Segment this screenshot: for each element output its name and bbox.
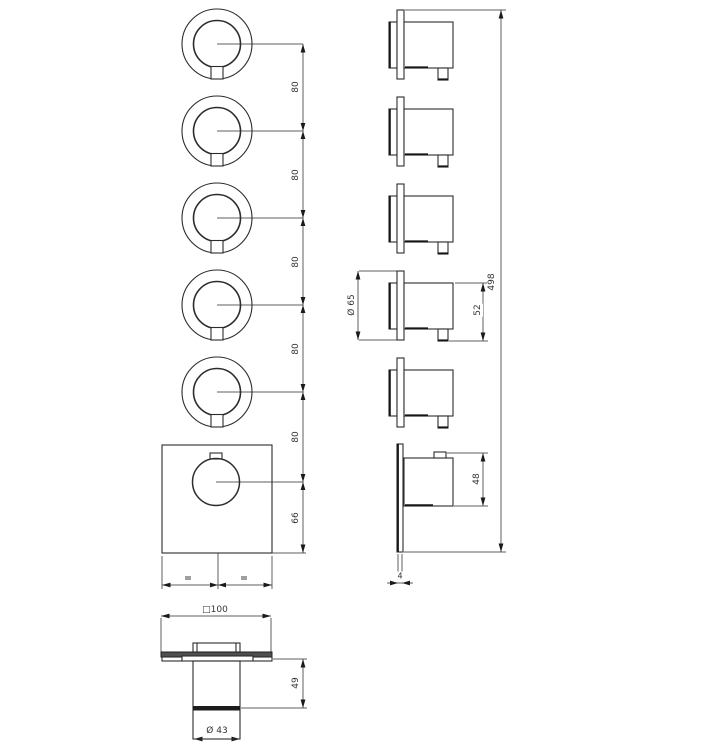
dim-label-spacing-1: 80	[291, 80, 301, 93]
dim-label-spacing-2: 80	[291, 168, 301, 181]
dim-label-spacing-5: 80	[291, 430, 301, 443]
arrowhead-left	[402, 581, 410, 586]
bottom-knob-top	[193, 643, 240, 652]
arrowhead-left	[161, 614, 170, 619]
dim-label-knob-depth: 52	[473, 303, 483, 316]
dimension-annotations	[161, 10, 506, 741]
arrowhead-right	[263, 614, 272, 619]
side-knob-1	[389, 10, 453, 80]
arrowhead-up	[481, 453, 486, 462]
arrowhead-up	[301, 659, 306, 668]
arrowhead-up	[481, 283, 486, 292]
dim-label-bottom-offset: 66	[291, 511, 301, 524]
arrowhead-down	[301, 545, 306, 554]
dim-label-total-height: 498	[487, 272, 497, 291]
front-view	[162, 9, 272, 553]
side-knob-4	[389, 271, 453, 341]
dim-label-base-diameter: Ø 43	[205, 726, 228, 736]
drawing-svg	[0, 0, 706, 750]
side-main-body	[404, 458, 453, 506]
bottom-plate-underside-center	[182, 656, 253, 661]
arrowhead-right	[264, 583, 273, 588]
arrowhead-up	[301, 44, 306, 53]
arrowhead-down	[481, 333, 486, 342]
dim-label-main-knob-depth: 48	[472, 472, 482, 485]
dim-label-plate-thickness: 4	[396, 572, 403, 581]
dim-label-spacing-4: 80	[291, 342, 301, 355]
side-main-knob-tab	[434, 452, 446, 458]
arrowhead-up	[499, 10, 504, 19]
arrowhead-down	[481, 498, 486, 507]
arrowhead-down	[499, 544, 504, 553]
side-knob-3	[389, 184, 453, 254]
side-knob-5	[389, 358, 453, 428]
arrowhead-left	[162, 583, 171, 588]
bottom-plate-underside-right	[253, 657, 272, 661]
dim-label-spacing-3: 80	[291, 255, 301, 268]
dim-label-body-height: 49	[291, 676, 301, 689]
dim-label-plate-width: □100	[201, 605, 229, 615]
dim-label-knob-diameter: Ø 65	[347, 293, 357, 316]
bottom-cylinder-band	[193, 706, 240, 711]
bottom-view	[161, 643, 272, 739]
side-knob-2	[389, 97, 453, 167]
side-view	[389, 10, 453, 552]
arrowhead-up	[356, 271, 361, 280]
arrowhead-right	[390, 581, 398, 586]
small-dim-mark	[241, 576, 247, 580]
front-square-plate	[162, 445, 272, 553]
arrowhead-down	[301, 700, 306, 709]
small-dim-mark	[185, 576, 191, 580]
technical-drawing-canvas: 80 80 80 80 80 66 498 Ø 65 52 48 4 □100 …	[0, 0, 706, 750]
arrowhead-down	[356, 332, 361, 341]
bottom-plate-underside-left	[162, 657, 182, 661]
